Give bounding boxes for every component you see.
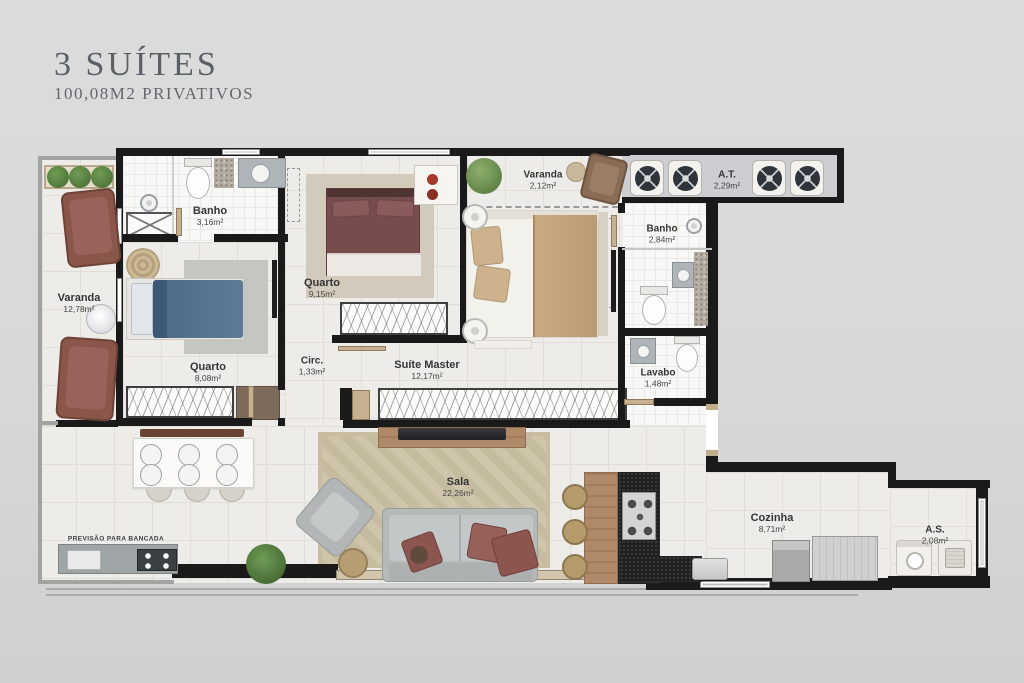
- sink-basin: [677, 269, 690, 282]
- toilet: [186, 167, 210, 199]
- cabinet: [236, 386, 280, 420]
- chair-cushion: [588, 161, 620, 196]
- pillow: [473, 265, 511, 303]
- door-leaf: [176, 208, 182, 236]
- fan-icon: [757, 166, 782, 191]
- round-rug: [126, 248, 160, 282]
- plate: [140, 464, 162, 486]
- room-label-quarto-2: Quarto9,15m²: [304, 277, 340, 299]
- nightstand: [414, 165, 458, 205]
- shower-divider: [622, 248, 712, 250]
- decor-vase: [427, 189, 438, 200]
- ac-unit: [630, 160, 664, 196]
- chair-cushion: [69, 196, 113, 256]
- granite-counter: [214, 158, 234, 188]
- fridge: [812, 536, 878, 581]
- plate: [140, 444, 162, 466]
- window: [222, 149, 260, 155]
- room-label-banho-social: Banho3,16m²: [193, 205, 227, 227]
- stove-handle: [773, 541, 809, 550]
- toilet: [676, 344, 698, 372]
- kitchen-island-wood: [584, 472, 618, 584]
- tank-basin: [945, 548, 965, 568]
- plant: [69, 166, 91, 188]
- door-leaf: [338, 346, 386, 351]
- wall: [38, 156, 42, 584]
- railing: [46, 594, 858, 596]
- wall-tv: [272, 260, 277, 318]
- door-leaf: [624, 399, 654, 405]
- cooktop: [622, 492, 656, 540]
- counter-sink: [67, 550, 101, 570]
- sink-basin: [251, 164, 270, 183]
- wall: [622, 148, 844, 155]
- room-label-quarto-1: Quarto8,08m²: [190, 361, 226, 383]
- room-label-suite-master: Suíte Master12,17m²: [394, 359, 459, 381]
- wardrobe: [378, 388, 627, 420]
- sink-vanity: [672, 262, 694, 288]
- lounge-chair: [60, 187, 122, 268]
- wall: [38, 580, 174, 584]
- wall: [706, 462, 896, 472]
- wall: [120, 234, 178, 242]
- window: [117, 278, 122, 322]
- room-label-circulacao: Circ.1,33m²: [299, 355, 325, 376]
- wall: [332, 335, 462, 343]
- wall: [888, 576, 990, 588]
- bed-sheet: [327, 253, 421, 276]
- headboard: [327, 189, 421, 197]
- bed-bench: [474, 340, 532, 349]
- double-bed: [326, 188, 420, 276]
- lounge-chair: [55, 336, 119, 422]
- room-label-cozinha: Cozinha8,71m²: [751, 512, 794, 534]
- fan-icon: [635, 166, 660, 191]
- entry-door-opening: [706, 410, 718, 452]
- plant: [91, 166, 113, 188]
- wall: [38, 156, 122, 160]
- door-frame: [706, 404, 718, 410]
- ac-unit: [790, 160, 824, 196]
- page: { "header": { "title": "3 SUÍTES", "subt…: [0, 0, 1024, 683]
- sofa: [382, 508, 538, 582]
- pillow: [376, 199, 415, 218]
- pouf: [338, 548, 368, 578]
- wall-tv: [611, 250, 616, 312]
- tv: [398, 428, 506, 440]
- kitchen-sink: [692, 558, 728, 580]
- pillow: [470, 226, 504, 267]
- plant: [47, 166, 69, 188]
- wardrobe: [340, 302, 448, 335]
- room-label-banho-suite: Banho2,84m²: [646, 223, 677, 244]
- sink-basin: [637, 345, 650, 358]
- lamp-dot: [471, 327, 479, 335]
- duvet: [153, 280, 243, 338]
- wall: [56, 420, 118, 427]
- closet-projection-quarto-2: [287, 168, 300, 222]
- toilet-tank: [674, 336, 700, 344]
- floor-plan: Varanda12,78m² Banho3,16m² Quarto8,08m² …: [0, 0, 1024, 683]
- wall: [40, 421, 58, 425]
- window: [368, 149, 450, 155]
- kitchen-counter: [620, 556, 702, 582]
- chair-cushion: [308, 490, 361, 544]
- plant: [246, 544, 286, 584]
- dining-bench: [140, 429, 244, 437]
- shower-head-icon: [140, 194, 158, 212]
- single-bed: [126, 278, 244, 340]
- pillow: [131, 283, 153, 335]
- fan-icon: [795, 166, 820, 191]
- wall: [340, 388, 352, 420]
- room-label-area-servico: A.S.2,08m²: [922, 524, 948, 545]
- lamp-dot: [471, 213, 479, 221]
- varanda-suite-open-edge: [467, 206, 618, 208]
- ac-unit: [668, 160, 702, 196]
- wall: [214, 234, 288, 242]
- plate: [178, 464, 200, 486]
- stove: [772, 540, 810, 582]
- wardrobe: [126, 386, 234, 418]
- plate: [178, 444, 200, 466]
- door-frame: [706, 450, 718, 456]
- annotation-bancada: PREVISÃO PARA BANCADA: [68, 536, 164, 543]
- door-leaf: [611, 215, 617, 247]
- sink-vanity: [238, 158, 286, 188]
- wall: [837, 148, 844, 203]
- plant: [466, 158, 502, 194]
- wall: [618, 203, 625, 213]
- stool: [562, 484, 588, 510]
- fan-icon: [673, 166, 698, 191]
- wall: [888, 480, 990, 488]
- future-counter: [58, 544, 178, 574]
- ac-unit: [752, 160, 786, 196]
- chair-cushion: [65, 346, 109, 411]
- room-label-sala: Sala22,26m²: [442, 476, 473, 498]
- granite-band: [694, 252, 708, 326]
- shower-head-icon: [686, 218, 702, 234]
- window: [700, 581, 770, 588]
- shower-divider: [172, 156, 174, 234]
- wall: [278, 418, 285, 426]
- plate: [216, 444, 238, 466]
- door-leaf: [248, 386, 254, 418]
- side-table: [410, 546, 428, 564]
- room-label-lavabo: Lavabo1,48m²: [640, 367, 675, 388]
- window: [978, 498, 986, 568]
- toilet: [642, 295, 666, 325]
- counter-cooktop: [137, 549, 177, 571]
- blanket: [533, 215, 597, 337]
- plate: [216, 464, 238, 486]
- toilet-tank: [640, 286, 668, 295]
- double-bed: [466, 210, 598, 338]
- toilet-tank: [184, 158, 212, 167]
- room-label-varanda-suite: Varanda2,12m²: [524, 169, 563, 190]
- room-label-area-tecnica: A.T.2,29m²: [714, 169, 740, 190]
- stool: [562, 554, 588, 580]
- bedside-lamp: [462, 204, 488, 230]
- wall: [116, 418, 252, 426]
- wall: [622, 197, 844, 203]
- decor-vase: [427, 174, 438, 185]
- stool: [562, 519, 588, 545]
- pillow: [332, 199, 371, 218]
- room-label-varanda-left: Varanda12,78m²: [58, 292, 101, 314]
- wall: [622, 328, 714, 336]
- sink-vanity: [630, 338, 656, 364]
- door-leaf: [352, 390, 370, 420]
